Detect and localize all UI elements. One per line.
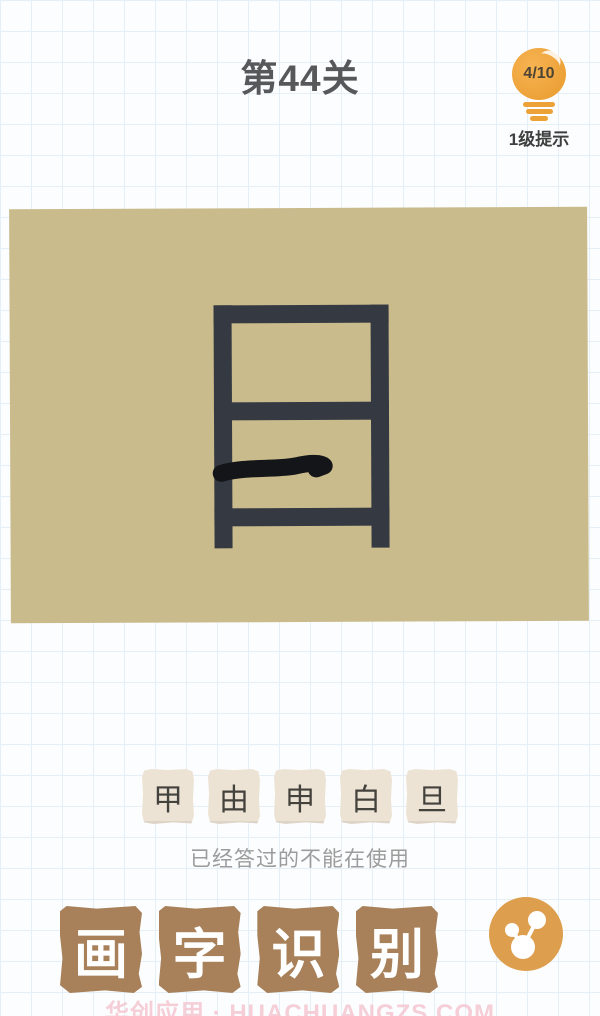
share-button[interactable] [489, 897, 563, 971]
game-screen: 第44关 4/10 1级提示 甲 由 申 白 旦 已经答过的不能在使用 画 [0, 0, 600, 1016]
answer-tile-2[interactable]: 由 [208, 769, 260, 824]
hint-label: 1级提示 [503, 125, 575, 150]
player-stroke [221, 463, 324, 473]
answer-tile-5[interactable]: 旦 [406, 769, 458, 824]
brand-block-2: 字 [159, 906, 241, 993]
hint-count: 4/10 [523, 65, 554, 83]
answer-tile-3[interactable]: 申 [274, 769, 326, 824]
share-icon [489, 897, 563, 971]
lightbulb-icon: 4/10 [512, 48, 566, 100]
bulb-base [503, 102, 575, 121]
drawing-canvas[interactable] [9, 207, 589, 624]
brand-block-1: 画 [60, 906, 142, 993]
answer-tile-1[interactable]: 甲 [142, 769, 194, 824]
answer-tiles: 甲 由 申 白 旦 [0, 769, 600, 824]
hint-button[interactable]: 4/10 1级提示 [503, 48, 575, 150]
watermark: 华创应用 · HUACHUANGZS.COM [0, 993, 600, 1016]
brand-block-4: 别 [356, 906, 438, 993]
brand-block-3: 识 [257, 906, 339, 993]
helper-text: 已经答过的不能在使用 [0, 843, 600, 873]
answer-tile-4[interactable]: 白 [340, 769, 392, 824]
puzzle-glyph [9, 207, 589, 624]
brand-title: 画 字 识 别 [60, 906, 438, 993]
